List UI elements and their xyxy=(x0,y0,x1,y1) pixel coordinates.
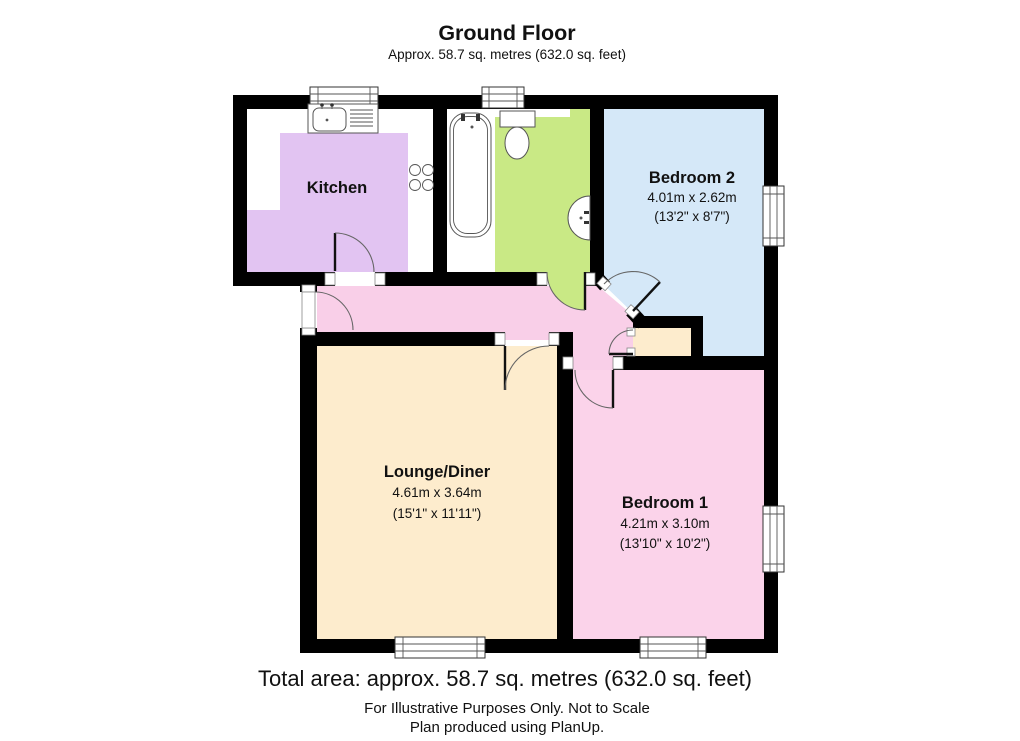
exterior-wall-left-lounge xyxy=(300,328,317,653)
bedroom2-imperial-dims: (13'2" x 8'7") xyxy=(654,209,730,224)
bedroom1-door-jamb-left xyxy=(563,357,573,369)
bedroom1-north-wall xyxy=(613,356,764,370)
sink-drain xyxy=(326,119,329,122)
bathroom-door-jamb-right xyxy=(585,273,595,285)
entrance-door-jamb-top xyxy=(302,285,315,292)
bathtub xyxy=(450,113,491,237)
cupboard-room xyxy=(633,328,691,358)
cupboard-door-jamb-top xyxy=(627,328,635,336)
cupboard-east-wall xyxy=(691,316,703,370)
bathtub-tap xyxy=(461,114,465,121)
bathroom-south-wall xyxy=(375,272,547,286)
bathroom-bedroom2-divider xyxy=(590,95,604,286)
lounge-north-wall xyxy=(300,332,505,346)
basin-tap xyxy=(584,211,589,214)
lounge-label: Lounge/Diner xyxy=(384,463,491,481)
kitchen-door-jamb-right xyxy=(375,273,385,285)
kitchen-bathroom-divider xyxy=(433,95,447,286)
kitchen-sink-unit xyxy=(308,103,378,133)
page-title: Ground Floor xyxy=(438,21,576,45)
page-subtitle: Approx. 58.7 sq. metres (632.0 sq. feet) xyxy=(388,47,626,62)
bathtub-drain xyxy=(471,126,474,129)
floorplan-page: Ground Floor Approx. 58.7 sq. metres (63… xyxy=(0,0,1020,741)
bedroom1-imperial-dims: (13'10" x 10'2") xyxy=(620,536,711,551)
lounge-imperial-dims: (15'1" x 11'11") xyxy=(393,506,482,521)
bathroom-window xyxy=(482,87,524,108)
bedroom1-doorway-floor xyxy=(573,356,613,372)
entrance-door-jamb-bottom xyxy=(302,328,315,335)
lounge-bedroom1-divider xyxy=(557,332,573,639)
bedroom2-window xyxy=(763,186,784,246)
sink-bowl xyxy=(313,108,346,131)
lounge-door-jamb-left xyxy=(495,333,505,345)
basin-drain xyxy=(580,217,583,220)
toilet-cistern xyxy=(500,111,535,127)
disclaimer-text: For Illustrative Purposes Only. Not to S… xyxy=(364,700,650,717)
lounge-door-jamb-right xyxy=(549,333,559,345)
bedroom2-label: Bedroom 2 xyxy=(649,169,735,187)
cupboard-floor xyxy=(633,328,691,358)
total-area-text: Total area: approx. 58.7 sq. metres (632… xyxy=(258,666,752,691)
bedroom1-label: Bedroom 1 xyxy=(622,494,708,512)
toilet-bowl xyxy=(505,127,529,159)
bedroom1-side-window xyxy=(763,506,784,572)
exterior-wall-left-kitchen xyxy=(233,95,247,286)
lounge-window xyxy=(395,637,485,658)
floorplan-canvas: Ground Floor Approx. 58.7 sq. metres (63… xyxy=(0,0,1020,741)
bedroom1-door-jamb-right xyxy=(613,357,623,369)
basin-tap xyxy=(584,221,589,224)
bedroom1-metric-dims: 4.21m x 3.10m xyxy=(620,516,709,531)
bedroom2-metric-dims: 4.01m x 2.62m xyxy=(647,190,736,205)
bedroom1-bottom-window xyxy=(640,637,706,658)
bathtub-tap xyxy=(476,114,480,121)
credit-text: Plan produced using PlanUp. xyxy=(410,719,604,736)
kitchen-door-jamb-left xyxy=(325,273,335,285)
kitchen-south-wall xyxy=(233,272,335,286)
lounge-metric-dims: 4.61m x 3.64m xyxy=(392,485,481,500)
kitchen-label: Kitchen xyxy=(307,179,368,197)
entrance-door-leaf xyxy=(302,292,315,328)
bathroom-door-jamb-left xyxy=(537,273,547,285)
